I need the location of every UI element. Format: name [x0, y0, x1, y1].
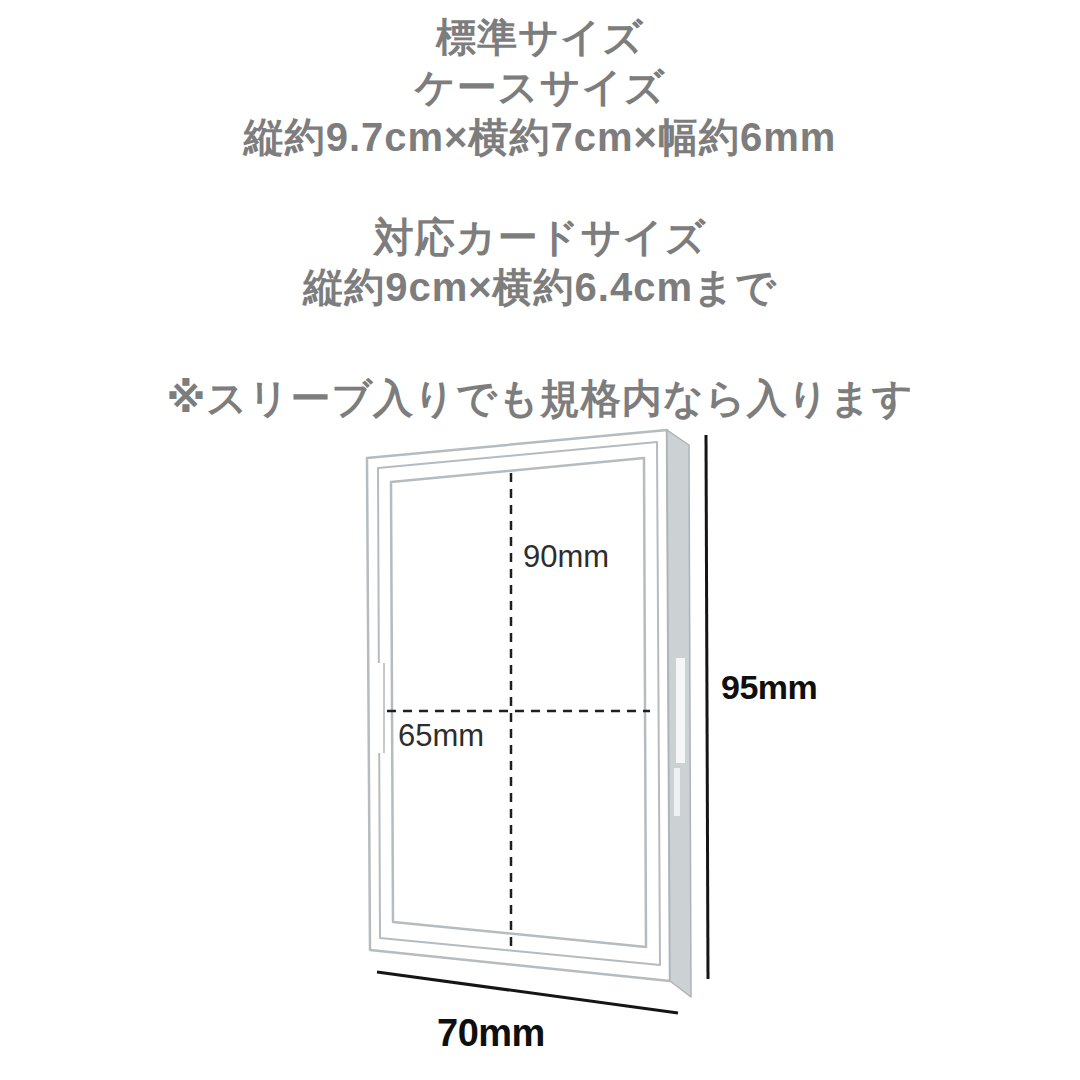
product-size-infographic: 標準サイズ ケースサイズ 縦約9.7cm×横約7cm×幅約6mm 対応カードサイ…: [0, 0, 1080, 1080]
outer-width-label: 70mm: [437, 1012, 545, 1054]
case-front-face: [367, 430, 670, 981]
case-right-notch-lower: [674, 768, 680, 816]
card-case-diagram: 90mm 65mm 95mm 70mm: [0, 0, 1080, 1080]
inner-width-label: 65mm: [398, 718, 484, 753]
outer-height-dimension-line: [706, 435, 708, 979]
case-left-notch: [374, 663, 384, 753]
outer-height-label: 95mm: [721, 668, 817, 706]
inner-height-label: 90mm: [523, 539, 609, 574]
case-right-notch: [676, 658, 685, 763]
